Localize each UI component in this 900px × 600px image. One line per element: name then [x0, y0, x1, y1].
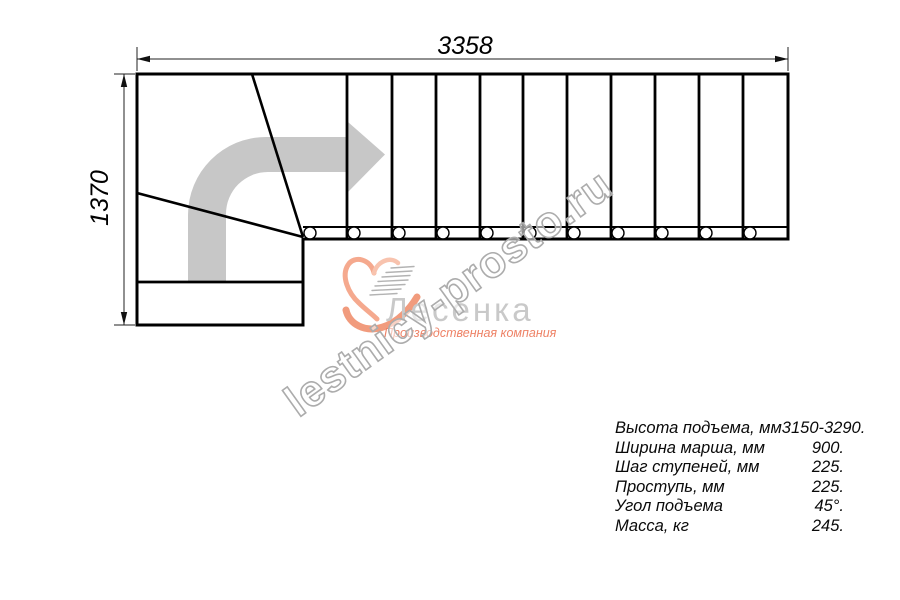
width-dimension-label: 3358 — [437, 32, 493, 60]
heart-left-lobe — [345, 259, 377, 319]
spec-label: Ширина марша, мм — [615, 439, 765, 459]
baluster-circle — [612, 227, 624, 239]
spec-row: Шаг ступеней, мм 225. — [615, 458, 844, 478]
stair-plan-page: 3358 1370 — [0, 0, 900, 600]
dimension-arrow-bottom — [121, 312, 127, 325]
spec-value: 900. — [812, 439, 844, 459]
height-dimension-label: 1370 — [86, 170, 114, 226]
baluster-circle — [437, 227, 449, 239]
spec-value: 245. — [812, 517, 844, 537]
spec-label: Угол подъема — [615, 497, 723, 517]
baluster-circle — [744, 227, 756, 239]
spec-row: Проступь, мм 225. — [615, 478, 844, 498]
spec-label: Шаг ступеней, мм — [615, 458, 759, 478]
specs-table: Высота подъема, мм 3150-3290. Ширина мар… — [615, 419, 844, 537]
spec-row: Ширина марша, мм 900. — [615, 439, 844, 459]
dimension-arrow-right — [775, 56, 788, 62]
spec-label: Проступь, мм — [615, 478, 725, 498]
baluster-circle — [304, 227, 316, 239]
spec-row: Угол подъема 45°. — [615, 497, 844, 517]
spec-value: 225. — [812, 458, 844, 478]
baluster-circle — [700, 227, 712, 239]
baluster-circle — [393, 227, 405, 239]
spec-row: Высота подъема, мм 3150-3290. — [615, 419, 844, 439]
spec-label: Высота подъема, мм — [615, 419, 782, 439]
height-dimension — [114, 74, 135, 325]
baluster-circle — [348, 227, 360, 239]
heart-right-lobe — [374, 260, 398, 273]
dimension-arrow-top — [121, 74, 127, 87]
spec-row: Масса, кг 245. — [615, 517, 844, 537]
spec-value: 225. — [812, 478, 844, 498]
spec-value: 45°. — [814, 497, 844, 517]
dimension-arrow-left — [137, 56, 150, 62]
spec-value: 3150-3290. — [782, 419, 866, 439]
spec-label: Масса, кг — [615, 517, 689, 537]
baluster-circle — [656, 227, 668, 239]
